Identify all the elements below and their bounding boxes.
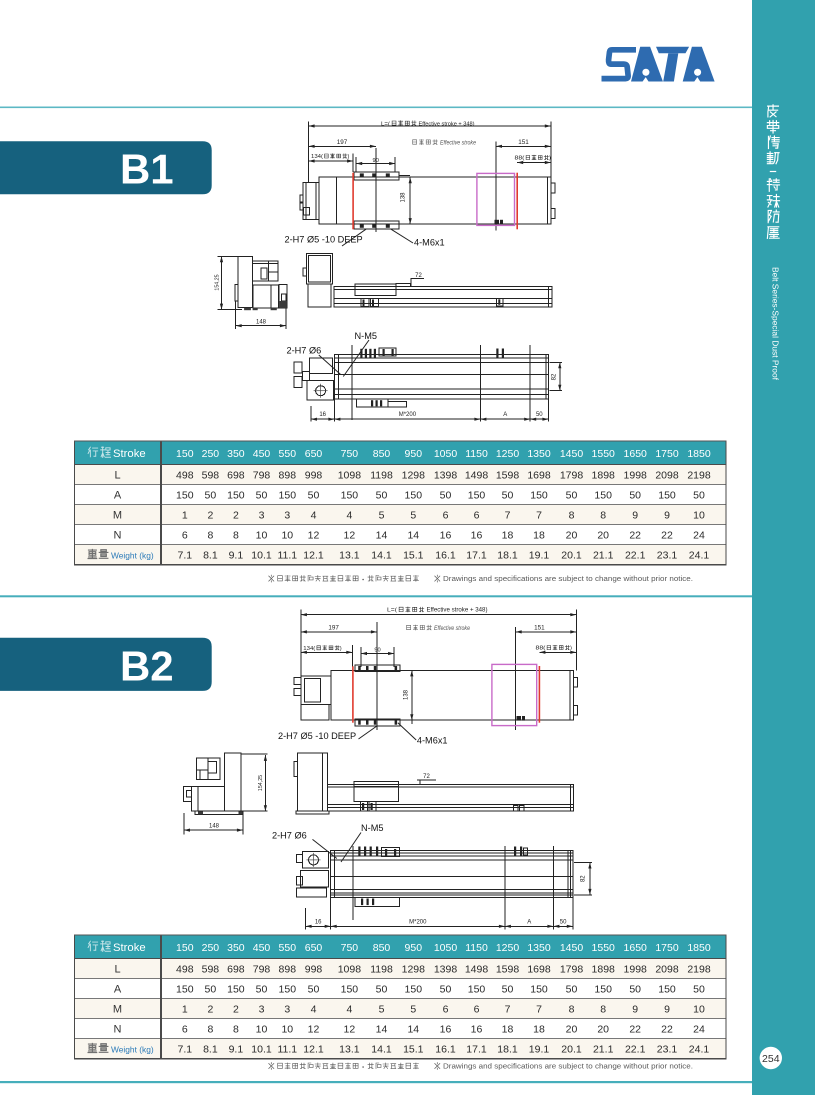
- svg-text:16: 16: [315, 920, 322, 926]
- svg-text:2-H7 Ø5 -10 DEEP: 2-H7 Ø5 -10 DEEP: [278, 731, 356, 741]
- svg-text:4-M6x1: 4-M6x1: [414, 238, 445, 248]
- svg-text:16: 16: [319, 412, 326, 418]
- svg-text:M*200: M*200: [409, 920, 427, 926]
- svg-text:4-M6x1: 4-M6x1: [417, 736, 448, 746]
- svg-text:A: A: [114, 489, 122, 501]
- svg-text:Effective stroke: Effective stroke: [440, 139, 476, 146]
- svg-text:Effective stroke: Effective stroke: [434, 625, 470, 632]
- svg-text:254: 254: [762, 1053, 780, 1065]
- svg-text:N-M5: N-M5: [355, 331, 377, 341]
- svg-text:7.18.19.110.111.112.113.114.11: 7.18.19.110.111.112.113.114.115.116.117.…: [177, 549, 709, 561]
- svg-text:): ): [570, 646, 572, 652]
- svg-text:Effective stroke + 348): Effective stroke + 348): [419, 121, 475, 127]
- svg-text:7.18.19.110.111.112.113.114.11: 7.18.19.110.111.112.113.114.115.116.117.…: [177, 1043, 709, 1055]
- svg-text:): ): [348, 154, 350, 160]
- svg-text:Drawings and specifications ar: Drawings and specifications are subject …: [443, 574, 693, 583]
- svg-text:50: 50: [560, 920, 567, 926]
- svg-text:154,25: 154,25: [258, 775, 264, 791]
- svg-text:A: A: [503, 412, 507, 418]
- svg-text:197: 197: [328, 624, 339, 631]
- svg-text:134(: 134(: [311, 154, 323, 160]
- svg-text:L: L: [114, 469, 120, 481]
- svg-text:): ): [340, 646, 342, 652]
- svg-text:M: M: [113, 509, 122, 521]
- svg-text:N-M5: N-M5: [361, 823, 383, 833]
- svg-text:Drawings and specifications ar: Drawings and specifications are subject …: [443, 1062, 693, 1071]
- svg-text:Weight (kg): Weight (kg): [111, 550, 154, 560]
- svg-text:B2: B2: [120, 642, 174, 689]
- svg-text:498598698798898998109811981298: 4985986987988989981098119812981398149815…: [176, 963, 711, 975]
- svg-text:Weight (kg): Weight (kg): [111, 1044, 154, 1054]
- svg-text:Stroke: Stroke: [113, 448, 146, 460]
- svg-text:50: 50: [536, 412, 543, 418]
- svg-text:B1: B1: [120, 146, 174, 193]
- svg-text:154,25: 154,25: [214, 274, 220, 290]
- svg-text:82: 82: [581, 875, 587, 882]
- svg-text:72: 72: [415, 273, 422, 279]
- svg-text:M: M: [113, 1003, 122, 1015]
- svg-text:90: 90: [374, 647, 380, 653]
- svg-text:N: N: [114, 1023, 122, 1035]
- svg-text:148: 148: [256, 320, 267, 326]
- svg-text:A: A: [114, 983, 122, 995]
- svg-text:138: 138: [401, 192, 407, 203]
- svg-text:134(: 134(: [303, 646, 315, 652]
- svg-text:N: N: [114, 529, 122, 541]
- svg-text:150250350450550650750850950105: 1502503504505506507508509501050115012501…: [176, 942, 711, 954]
- svg-text:Effective stroke + 348): Effective stroke + 348): [427, 608, 488, 614]
- svg-text:2-H7 Ø6: 2-H7 Ø6: [272, 831, 307, 841]
- svg-text:148: 148: [209, 824, 220, 830]
- svg-text:138: 138: [403, 689, 409, 700]
- svg-text:72: 72: [423, 774, 430, 780]
- svg-text:M*200: M*200: [399, 412, 417, 418]
- svg-text:L=(: L=(: [381, 121, 390, 127]
- svg-text:88(: 88(: [515, 156, 525, 162]
- svg-text:): ): [549, 156, 551, 162]
- svg-text:150250350450550650750850950105: 1502503504505506507508509501050115012501…: [176, 448, 711, 460]
- svg-text:82: 82: [552, 373, 558, 380]
- svg-text:Belt Series-Special Dust Proof: Belt Series-Special Dust Proof: [771, 267, 781, 381]
- svg-text:2-H7 Ø6: 2-H7 Ø6: [287, 346, 322, 356]
- svg-text:Stroke: Stroke: [113, 942, 146, 954]
- svg-text:A: A: [527, 920, 531, 926]
- svg-text:L=(: L=(: [387, 608, 397, 614]
- svg-text:151: 151: [518, 139, 529, 146]
- svg-text:151: 151: [534, 624, 545, 631]
- svg-text:2-H7 Ø5 -10 DEEP: 2-H7 Ø5 -10 DEEP: [285, 235, 363, 245]
- svg-text:88(: 88(: [536, 646, 546, 652]
- svg-text:498598698798898998109811981298: 4985986987988989981098119812981398149815…: [176, 469, 711, 481]
- svg-text:L: L: [114, 963, 120, 975]
- svg-text:197: 197: [337, 139, 348, 146]
